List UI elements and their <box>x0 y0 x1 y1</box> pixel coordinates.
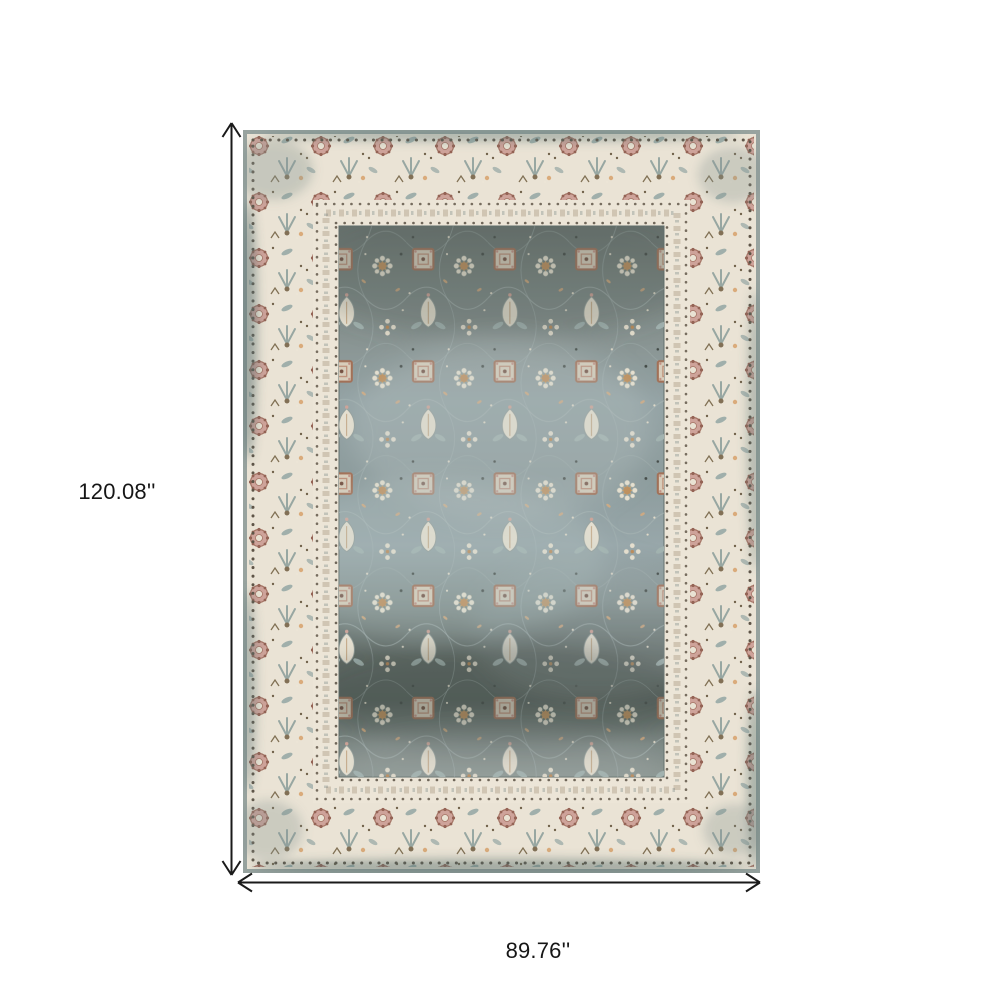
height-dimension-arrow <box>217 119 246 879</box>
width-label: 89.76'' <box>478 938 598 964</box>
height-label: 120.08'' <box>57 479 177 505</box>
width-dimension-arrow <box>233 868 765 897</box>
rug-illustration <box>243 130 760 873</box>
rug-image <box>243 130 760 873</box>
product-dimension-diagram: 120.08'' 89.76'' <box>0 0 1000 1000</box>
